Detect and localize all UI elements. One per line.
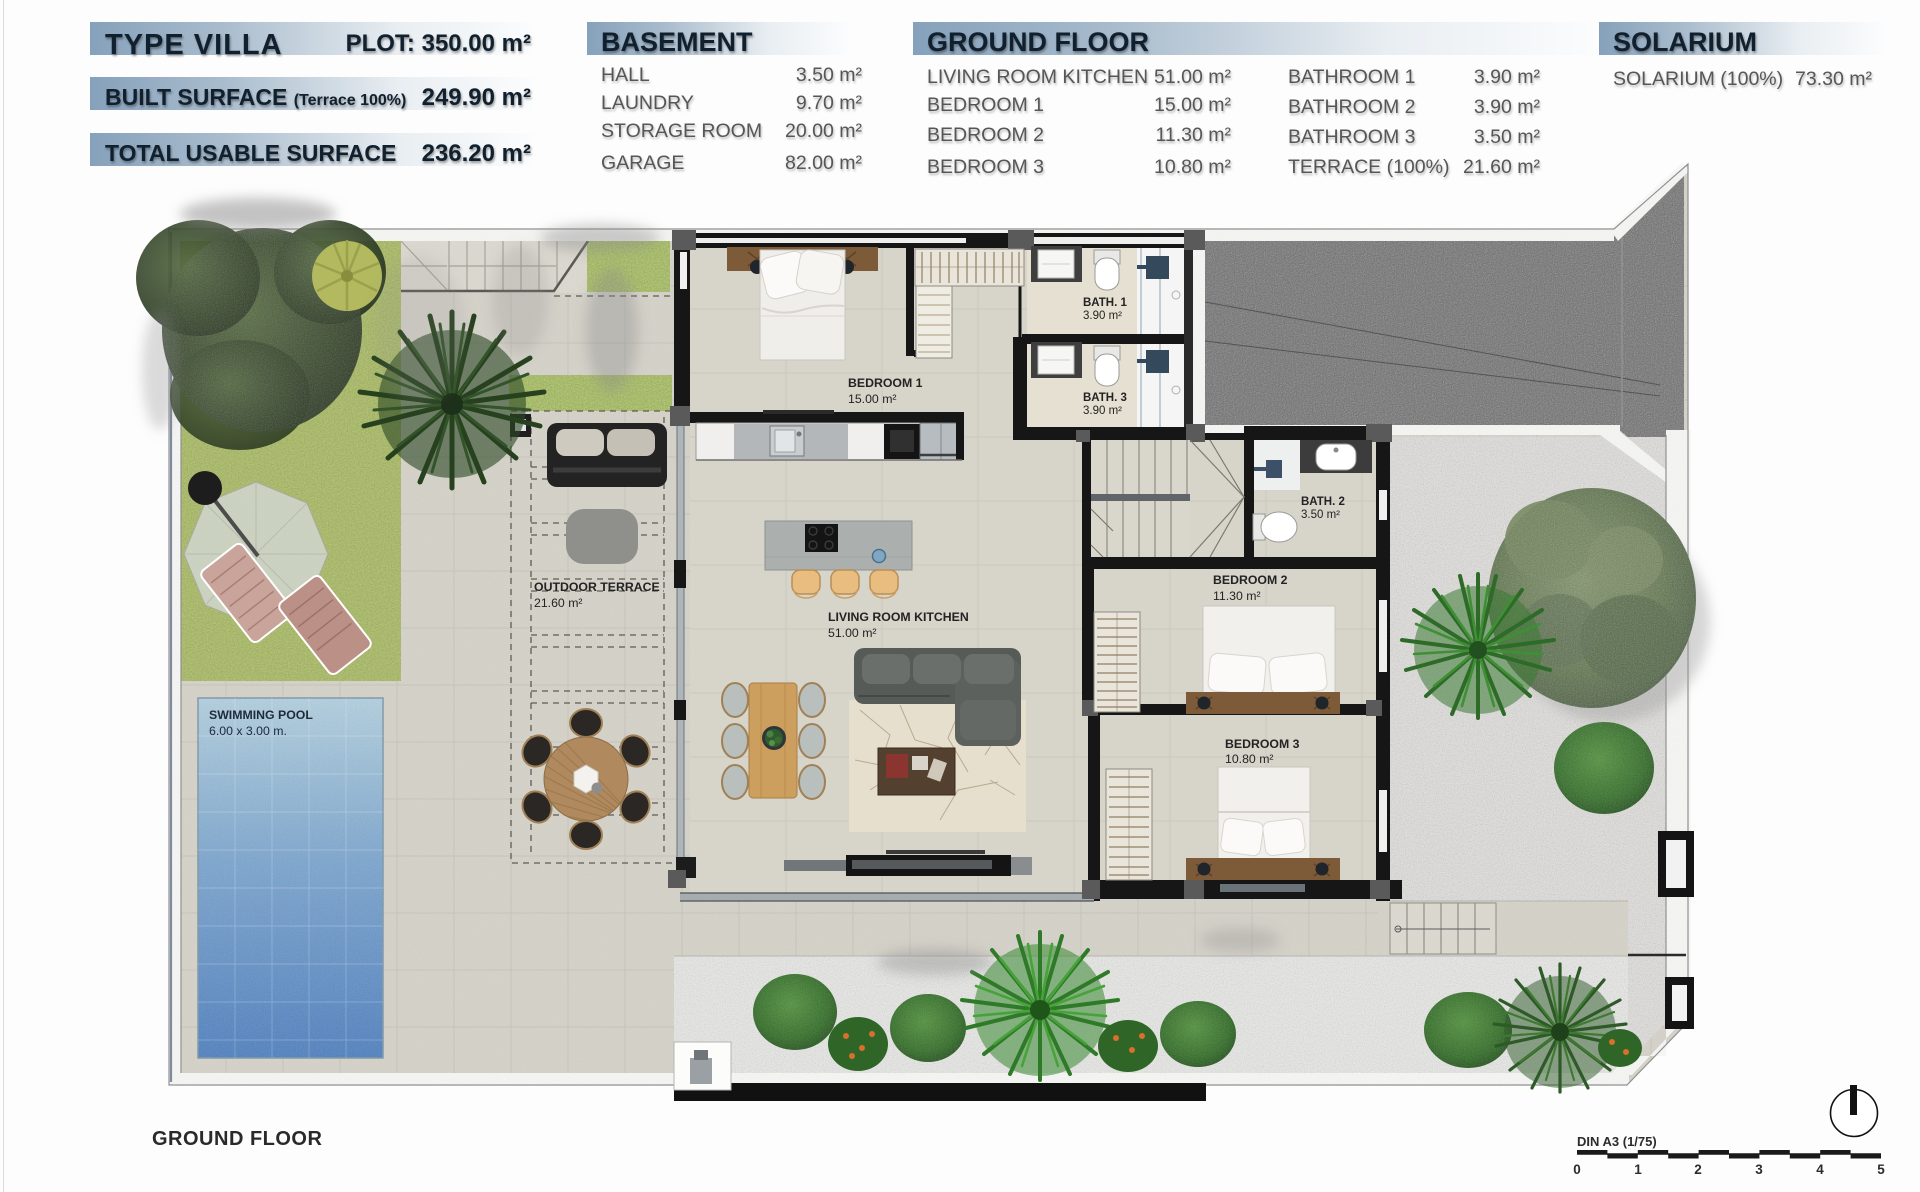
svg-text:21.60 m²: 21.60 m²	[534, 596, 583, 610]
svg-text:4: 4	[1816, 1162, 1824, 1177]
svg-text:BATH. 2: BATH. 2	[1301, 496, 1345, 508]
svg-text:6.00 x 3.00 m.: 6.00 x 3.00 m.	[209, 724, 287, 738]
svg-text:BATH. 1: BATH. 1	[1083, 297, 1127, 309]
svg-text:3.50 m²: 3.50 m²	[1301, 509, 1340, 521]
svg-text:LIVING ROOM KITCHEN: LIVING ROOM KITCHEN	[828, 610, 969, 624]
svg-text:11.30 m²: 11.30 m²	[1213, 589, 1261, 603]
svg-text:15.00 m²: 15.00 m²	[848, 392, 897, 406]
svg-text:BATH. 3: BATH. 3	[1083, 392, 1127, 404]
svg-text:BEDROOM 3: BEDROOM 3	[1225, 737, 1300, 751]
svg-text:51.00 m²: 51.00 m²	[828, 626, 877, 640]
svg-text:BEDROOM 1: BEDROOM 1	[848, 376, 923, 390]
svg-text:3: 3	[1755, 1162, 1763, 1177]
svg-text:3.90 m²: 3.90 m²	[1083, 405, 1122, 417]
svg-text:10.80 m²: 10.80 m²	[1225, 752, 1274, 766]
svg-text:OUTDOOR TERRACE: OUTDOOR TERRACE	[534, 580, 660, 594]
svg-text:SWIMMING POOL: SWIMMING POOL	[209, 708, 313, 722]
svg-text:DIN A3 (1/75): DIN A3 (1/75)	[1577, 1134, 1657, 1149]
svg-text:BEDROOM 2: BEDROOM 2	[1213, 573, 1288, 587]
svg-text:0: 0	[1573, 1162, 1581, 1177]
svg-text:2: 2	[1694, 1162, 1702, 1177]
svg-text:1: 1	[1634, 1162, 1642, 1177]
svg-text:5: 5	[1877, 1162, 1885, 1177]
svg-text:3.90 m²: 3.90 m²	[1083, 310, 1122, 322]
